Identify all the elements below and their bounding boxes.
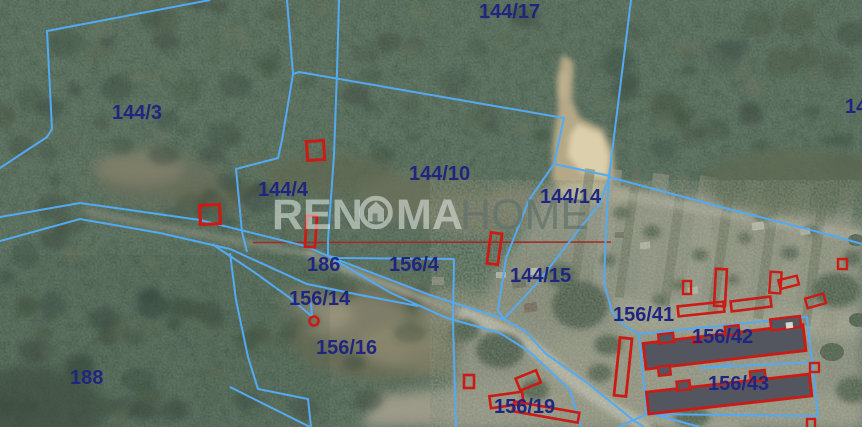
svg-text:144/3: 144/3 xyxy=(112,102,162,124)
svg-text:156/41: 156/41 xyxy=(613,304,674,326)
svg-text:156/4: 156/4 xyxy=(389,254,440,276)
svg-text:156/16: 156/16 xyxy=(316,337,377,359)
svg-text:MA: MA xyxy=(396,191,463,239)
svg-text:144/15: 144/15 xyxy=(510,265,571,287)
svg-text:156/19: 156/19 xyxy=(494,396,555,418)
svg-text:156/14: 156/14 xyxy=(289,288,351,310)
svg-text:156/42: 156/42 xyxy=(692,326,753,348)
svg-text:144: 144 xyxy=(845,96,862,118)
svg-text:144/14: 144/14 xyxy=(540,186,602,208)
svg-text:144/17: 144/17 xyxy=(479,1,540,23)
svg-text:188: 188 xyxy=(70,367,103,389)
svg-text:156/43: 156/43 xyxy=(708,373,769,395)
svg-text:144/10: 144/10 xyxy=(409,163,470,185)
svg-text:186: 186 xyxy=(307,254,340,276)
svg-text:144/4: 144/4 xyxy=(258,179,309,201)
